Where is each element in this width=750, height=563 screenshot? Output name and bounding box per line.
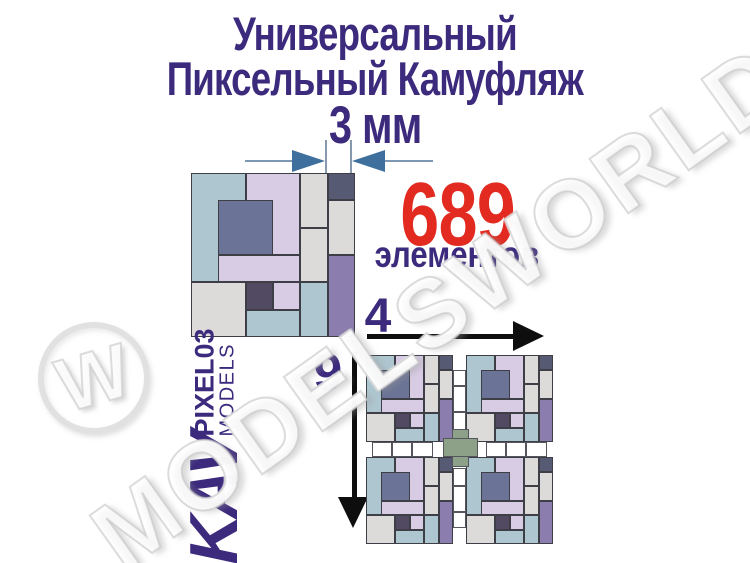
gap-filler-white bbox=[372, 442, 392, 457]
gap-filler-white bbox=[453, 412, 466, 430]
rows-count: 9 bbox=[302, 347, 354, 399]
camo-block-gray bbox=[524, 486, 539, 515]
camo-block-gray bbox=[539, 472, 554, 501]
camo-block-lavender bbox=[273, 282, 300, 309]
columns-arrow-line bbox=[367, 334, 514, 339]
camo-block-dark bbox=[539, 457, 554, 472]
camo-block-gray bbox=[524, 355, 539, 384]
camo-block-purple bbox=[539, 399, 554, 443]
camo-block-slate bbox=[381, 472, 410, 501]
rows-arrowhead-icon bbox=[338, 497, 368, 528]
gap-filler-white bbox=[453, 468, 466, 486]
camo-block-gray bbox=[424, 384, 439, 413]
camo-block-gray bbox=[466, 515, 495, 544]
cell-size-label-text: 3 мм bbox=[329, 95, 422, 156]
measure-arrowhead-left-icon bbox=[352, 150, 385, 172]
camo-block-teal bbox=[524, 413, 539, 442]
cell-size-label: 3 мм bbox=[0, 95, 750, 156]
camo-block-gray bbox=[300, 228, 327, 283]
element-count-unit-text: элементов bbox=[375, 236, 540, 273]
gap-filler-white bbox=[526, 442, 547, 457]
camo-block-purple bbox=[439, 399, 454, 443]
brand-series: PIXEL03 bbox=[192, 347, 219, 437]
camo-block-lavender bbox=[218, 255, 300, 282]
measure-tick-left bbox=[325, 140, 327, 177]
camo-tile-bottom-left bbox=[366, 457, 453, 544]
camo-block-teal bbox=[495, 428, 524, 443]
camo-block-dark2 bbox=[395, 413, 410, 428]
camo-tile-bottom-right bbox=[466, 457, 553, 544]
camo-tile-top-right bbox=[466, 355, 553, 442]
camo-block-teal bbox=[524, 515, 539, 544]
camo-block-gray bbox=[366, 413, 395, 442]
camo-block-gray bbox=[424, 457, 439, 486]
gap-filler-white bbox=[453, 486, 466, 512]
camo-block-teal bbox=[395, 530, 424, 545]
camo-block-teal bbox=[300, 282, 327, 337]
gap-filler-white bbox=[506, 442, 526, 457]
camo-block-lavender bbox=[410, 413, 425, 428]
camo-block-lavender bbox=[510, 515, 525, 530]
gap-filler-white bbox=[412, 442, 433, 457]
camo-block-purple bbox=[328, 255, 355, 337]
gap-filler-white bbox=[453, 370, 466, 386]
rows-arrow-line bbox=[352, 352, 357, 498]
camo-block-teal bbox=[495, 530, 524, 545]
camo-block-gray bbox=[539, 370, 554, 399]
camo-block-dark bbox=[439, 355, 454, 370]
camo-block-teal bbox=[246, 310, 301, 337]
gap-filler-white bbox=[392, 442, 412, 457]
camo-block-lavender bbox=[381, 501, 425, 516]
brand-suffix: MODELS bbox=[218, 355, 239, 437]
product-infographic: Универсальный Пиксельный Камуфляж 3 мм 6… bbox=[0, 0, 750, 563]
watermark-circle-logo: W bbox=[38, 322, 150, 434]
camo-block-dark2 bbox=[395, 515, 410, 530]
tiled-pattern-grid bbox=[366, 355, 553, 544]
camo-block-lavender bbox=[410, 515, 425, 530]
camo-block-gray bbox=[524, 384, 539, 413]
measure-arrowhead-right-icon bbox=[292, 150, 325, 172]
camo-block-dark2 bbox=[495, 413, 510, 428]
camo-tile-top-left bbox=[366, 355, 453, 442]
columns-arrowhead-icon bbox=[513, 321, 544, 351]
camo-block-slate bbox=[218, 200, 273, 255]
camo-tile-large bbox=[191, 173, 355, 337]
camo-block-dark2 bbox=[246, 282, 273, 309]
camo-block-dark bbox=[439, 457, 454, 472]
measure-line-right bbox=[385, 160, 433, 162]
camo-block-lavender bbox=[481, 501, 525, 516]
gap-filler-white bbox=[486, 442, 506, 457]
gap-filler-white bbox=[453, 512, 466, 528]
camo-block-slate bbox=[481, 370, 510, 399]
watermark-monogram: W bbox=[48, 326, 141, 429]
camo-block-slate bbox=[381, 370, 410, 399]
camo-block-gray bbox=[524, 457, 539, 486]
camo-block-gray bbox=[366, 515, 395, 544]
camo-block-gray bbox=[439, 472, 454, 501]
camo-block-gray bbox=[424, 355, 439, 384]
camo-block-teal bbox=[395, 428, 424, 443]
camo-block-slate bbox=[481, 472, 510, 501]
camo-block-dark bbox=[539, 355, 554, 370]
camo-block-gray bbox=[439, 370, 454, 399]
camo-block-teal bbox=[424, 413, 439, 442]
camo-block-lavender bbox=[510, 413, 525, 428]
camo-block-gray bbox=[424, 486, 439, 515]
camo-block-lavender bbox=[381, 399, 425, 414]
camo-block-gray bbox=[328, 200, 355, 255]
camo-block-teal bbox=[424, 515, 439, 544]
camo-block-purple bbox=[539, 501, 554, 545]
camo-block-dark bbox=[328, 173, 355, 200]
camo-block-gray bbox=[300, 173, 327, 228]
brand-logo-kav: KAV bbox=[181, 432, 247, 563]
camo-block-purple bbox=[439, 501, 454, 545]
camo-block-lavender bbox=[481, 399, 525, 414]
camo-block-dark2 bbox=[495, 515, 510, 530]
measure-line-left bbox=[245, 160, 292, 162]
element-count-unit: элементов bbox=[357, 236, 557, 273]
gap-filler-white bbox=[453, 386, 466, 412]
gap-filler-green bbox=[453, 439, 468, 456]
